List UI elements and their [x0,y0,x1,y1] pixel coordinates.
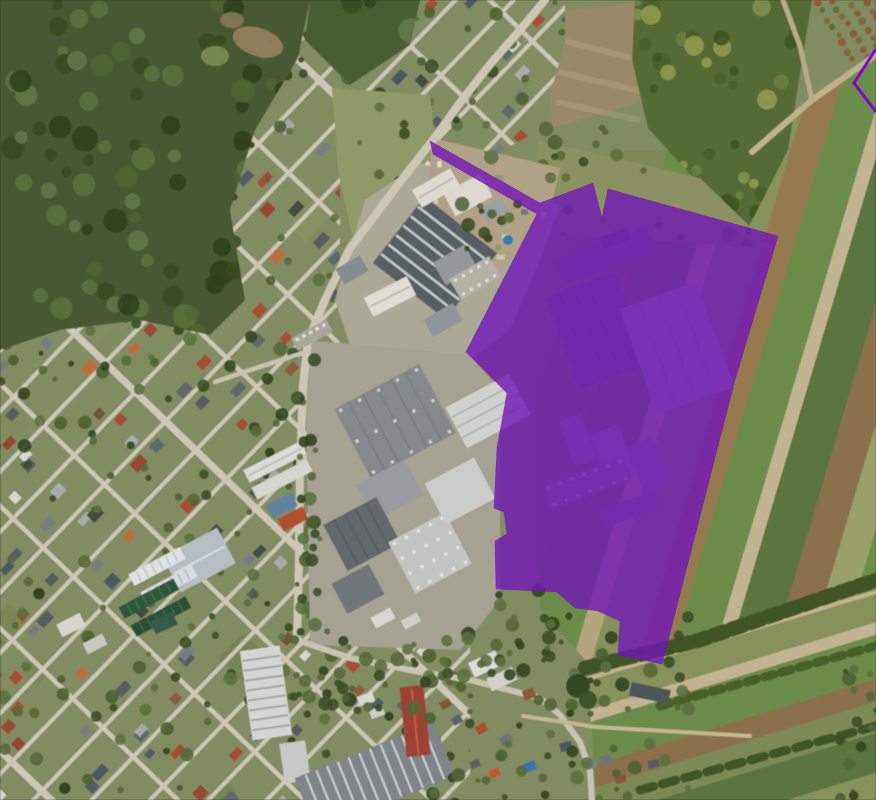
water-tank [503,235,513,245]
orthophoto-layer [0,0,876,800]
map-viewport[interactable] [0,0,876,800]
aerial-imagery [0,0,876,800]
